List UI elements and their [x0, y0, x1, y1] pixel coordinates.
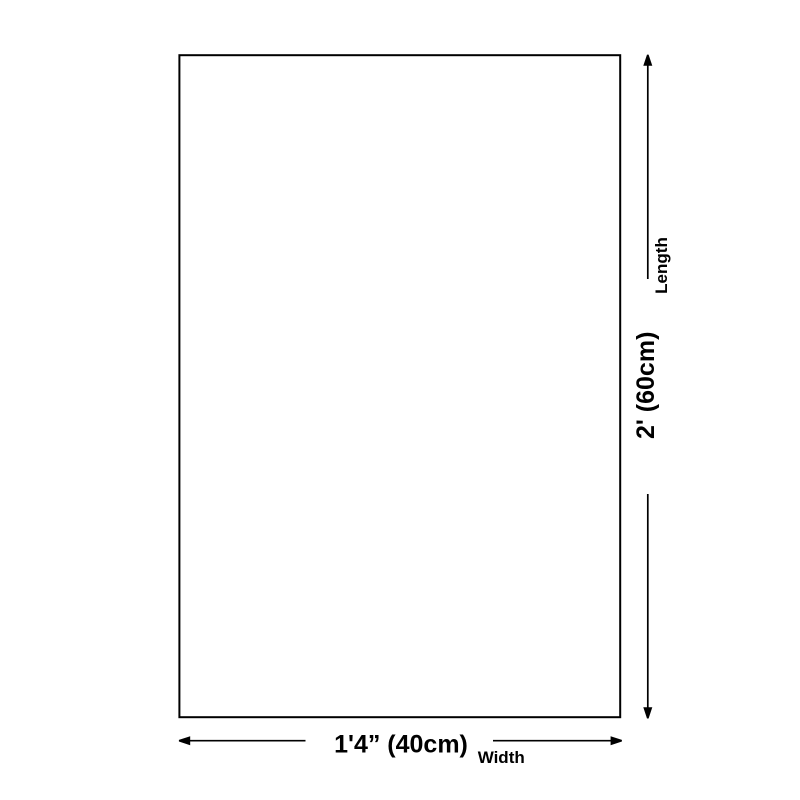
svg-text:2' (60cm): 2' (60cm): [632, 332, 660, 439]
svg-text:1'4” (40cm): 1'4” (40cm): [334, 730, 468, 758]
svg-text:Width: Width: [478, 748, 525, 767]
svg-text:Length: Length: [652, 237, 671, 294]
